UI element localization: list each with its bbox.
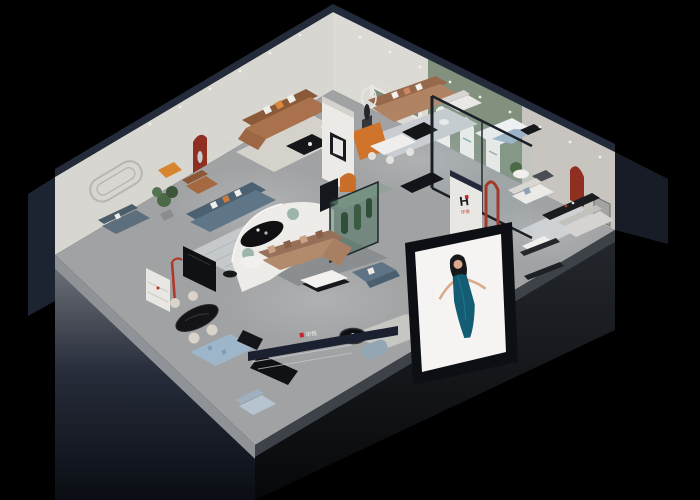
spotlight [209,88,212,91]
spotlight [389,51,392,54]
showroom-render: ····· ····· H ··· [0,0,700,500]
spotlight [419,66,422,69]
dining-chair-cream [170,298,180,308]
plant-foliage [166,186,178,198]
dining-chair [386,156,394,164]
cactus [366,198,372,218]
niche-sculpture [197,151,202,163]
spotlight [149,123,152,126]
spotlight [179,106,182,109]
spotlight [269,52,272,55]
cactus [341,212,348,234]
spotlight [299,34,302,37]
table-vase [256,228,259,231]
mint-chair [287,208,299,220]
shelf-accent [157,287,160,290]
spotlight [599,156,602,159]
dining-chair-cream [189,333,200,344]
spotlight [449,81,452,84]
dining-chair-cream [188,291,198,301]
spotlight [239,70,242,73]
table-tray [308,142,312,146]
fascia-logo-red-square [299,332,304,337]
spotlight [509,111,512,114]
dining-chair [406,148,414,156]
statue-figure [364,104,370,120]
cactus [354,204,361,230]
black-tray-table [223,271,237,278]
plant-foliage [152,187,162,197]
partition-frame-wall [322,96,356,194]
outer-wall-left [28,177,55,316]
console-accent-white [572,202,575,205]
spotlight [569,141,572,144]
table-vase [264,231,267,234]
dining-chair-cream [207,325,218,336]
console-accent-red [565,205,568,208]
spotlight [539,126,542,129]
round-table-white [513,170,529,179]
round-coffee-table [240,256,264,268]
spotlight [479,96,482,99]
orange-accent-seat [340,173,356,192]
spotlight [359,36,362,39]
dining-chair [368,152,376,160]
showroom-screenshot: ····· ····· H ··· [0,0,700,500]
brand-logo-red-square [465,195,469,199]
